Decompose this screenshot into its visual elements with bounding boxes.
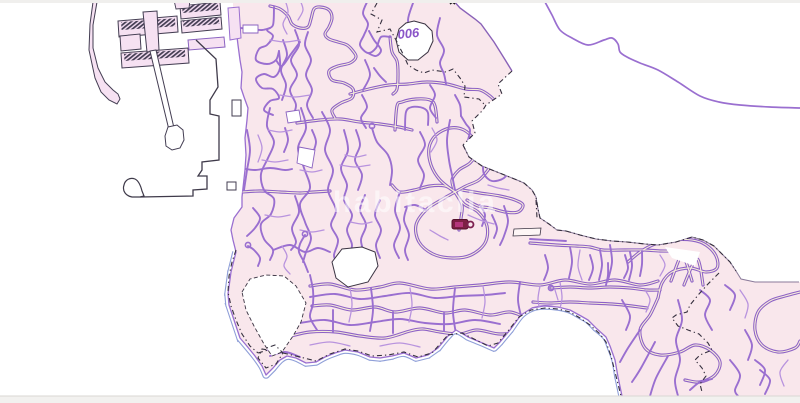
svg-text:006: 006 [397, 25, 421, 42]
svg-text:habitaclia: habitaclia [333, 186, 497, 219]
